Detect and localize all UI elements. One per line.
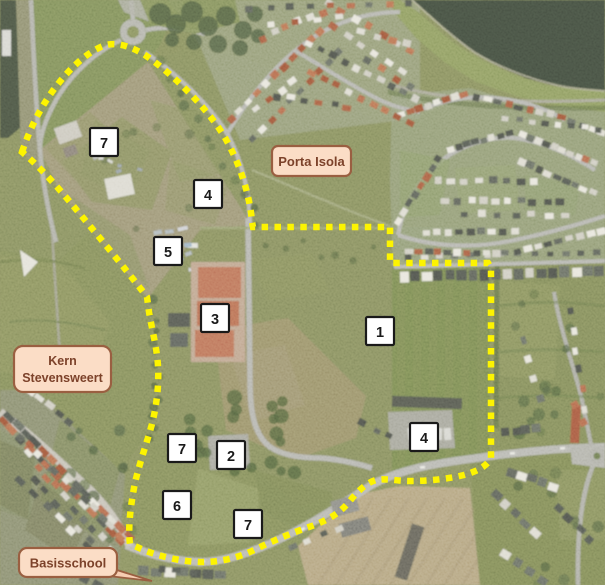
- svg-text:6: 6: [173, 499, 181, 515]
- svg-text:3: 3: [211, 312, 219, 328]
- svg-text:1: 1: [376, 325, 384, 341]
- svg-text:Basisschool: Basisschool: [30, 556, 107, 571]
- svg-text:5: 5: [164, 245, 172, 261]
- svg-text:7: 7: [178, 442, 186, 458]
- svg-text:2: 2: [227, 449, 235, 465]
- svg-text:Porta Isola: Porta Isola: [278, 154, 345, 169]
- svg-text:7: 7: [100, 136, 108, 152]
- svg-text:4: 4: [204, 188, 212, 204]
- svg-text:Stevensweert: Stevensweert: [22, 371, 103, 385]
- svg-text:Kern: Kern: [48, 354, 76, 368]
- svg-text:4: 4: [420, 431, 428, 447]
- svg-text:7: 7: [244, 518, 252, 534]
